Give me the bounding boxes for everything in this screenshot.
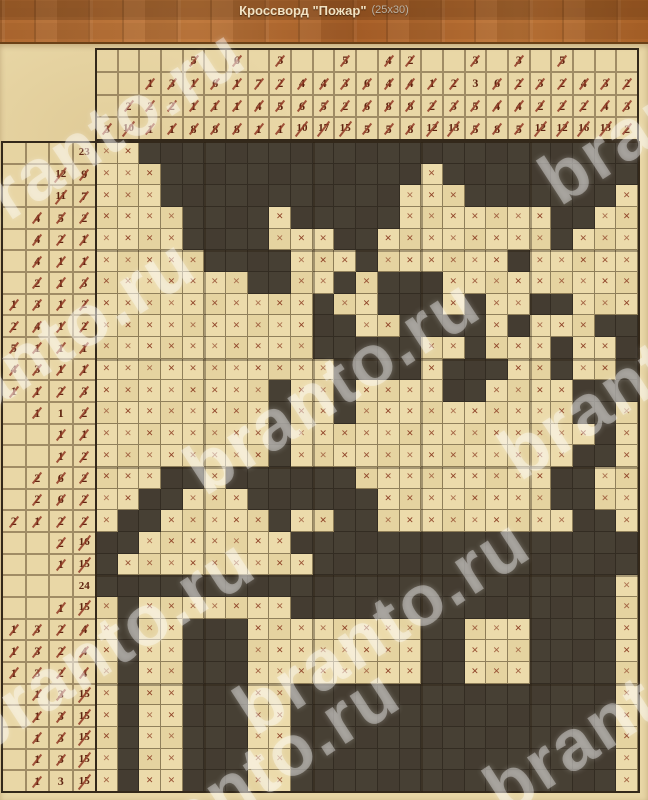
clue-number[interactable]: 2: [81, 472, 87, 484]
grid-cell-filled[interactable]: [356, 705, 378, 727]
clue-number[interactable]: 1: [11, 645, 17, 657]
grid-cell-filled[interactable]: [530, 770, 552, 792]
grid-cell-filled[interactable]: [421, 749, 443, 771]
grid-cell-filled[interactable]: [183, 749, 205, 771]
grid-cell-empty[interactable]: ✕: [139, 705, 161, 727]
grid-cell-filled[interactable]: [356, 359, 378, 381]
clue-number[interactable]: 2: [342, 100, 348, 112]
grid-cell-filled[interactable]: [291, 770, 313, 792]
grid-cell-empty[interactable]: ✕: [139, 727, 161, 749]
clue-number[interactable]: 2: [624, 123, 630, 135]
grid-cell-empty[interactable]: ✕: [248, 380, 270, 402]
clue-number[interactable]: 2: [58, 645, 64, 657]
clue-number[interactable]: 3: [472, 54, 478, 66]
clue-number[interactable]: 1: [234, 77, 240, 89]
clue-number[interactable]: 3: [624, 100, 630, 112]
grid-cell-filled[interactable]: [595, 185, 617, 207]
grid-cell-empty[interactable]: ✕: [183, 424, 205, 446]
grid-cell-filled[interactable]: [118, 684, 140, 706]
grid-cell-filled[interactable]: [334, 142, 356, 164]
grid-cell-filled[interactable]: [551, 619, 573, 641]
grid-cell-empty[interactable]: ✕: [269, 705, 291, 727]
grid-cell-empty[interactable]: ✕: [508, 229, 530, 251]
clue-number[interactable]: 10: [123, 123, 134, 134]
grid-cell-empty[interactable]: ✕: [183, 489, 205, 511]
clue-number[interactable]: 8: [494, 123, 500, 135]
grid-cell-filled[interactable]: [204, 619, 226, 641]
grid-cell-empty[interactable]: ✕: [291, 424, 313, 446]
grid-cell-empty[interactable]: ✕: [465, 640, 487, 662]
clue-number[interactable]: 4: [81, 667, 87, 679]
grid-cell-filled[interactable]: [400, 272, 422, 294]
grid-cell-filled[interactable]: [595, 424, 617, 446]
grid-cell-empty[interactable]: ✕: [291, 337, 313, 359]
grid-cell-empty[interactable]: ✕: [161, 359, 183, 381]
clue-number[interactable]: 4: [386, 54, 392, 66]
grid-cell-empty[interactable]: ✕: [443, 467, 465, 489]
grid-cell-filled[interactable]: [551, 185, 573, 207]
grid-cell-filled[interactable]: [573, 662, 595, 684]
clue-number[interactable]: 8: [191, 123, 197, 135]
grid-cell-empty[interactable]: ✕: [465, 229, 487, 251]
grid-cell-filled[interactable]: [551, 705, 573, 727]
grid-cell-filled[interactable]: [530, 727, 552, 749]
grid-cell-empty[interactable]: ✕: [551, 510, 573, 532]
grid-cell-filled[interactable]: [573, 597, 595, 619]
clue-number[interactable]: 1: [58, 342, 64, 354]
grid-cell-empty[interactable]: ✕: [183, 359, 205, 381]
grid-cell-empty[interactable]: ✕: [595, 229, 617, 251]
clue-number[interactable]: 2: [559, 100, 565, 112]
clue-number[interactable]: 4: [321, 77, 327, 89]
grid-cell-filled[interactable]: [161, 467, 183, 489]
grid-cell-filled[interactable]: [183, 575, 205, 597]
clue-number[interactable]: 12: [557, 123, 568, 134]
grid-cell-empty[interactable]: ✕: [595, 489, 617, 511]
grid-cell-filled[interactable]: [616, 532, 638, 554]
grid-cell-filled[interactable]: [269, 424, 291, 446]
grid-cell-empty[interactable]: ✕: [465, 207, 487, 229]
grid-cell-empty[interactable]: ✕: [378, 445, 400, 467]
grid-cell-empty[interactable]: ✕: [183, 445, 205, 467]
grid-cell-empty[interactable]: ✕: [161, 272, 183, 294]
clue-number[interactable]: 5: [559, 54, 565, 66]
grid-cell-filled[interactable]: [551, 294, 573, 316]
grid-cell-empty[interactable]: ✕: [443, 510, 465, 532]
grid-cell-filled[interactable]: [313, 532, 335, 554]
clue-number[interactable]: 2: [277, 77, 283, 89]
grid-cell-empty[interactable]: ✕: [400, 619, 422, 641]
grid-cell-filled[interactable]: [573, 445, 595, 467]
grid-cell-empty[interactable]: ✕: [334, 294, 356, 316]
grid-cell-filled[interactable]: [530, 532, 552, 554]
grid-cell-filled[interactable]: [551, 142, 573, 164]
grid-cell-filled[interactable]: [378, 337, 400, 359]
grid-cell-filled[interactable]: [400, 294, 422, 316]
clue-number[interactable]: 2: [147, 100, 153, 112]
grid-cell-empty[interactable]: ✕: [508, 380, 530, 402]
clue-number[interactable]: 6: [494, 77, 500, 89]
grid-cell-filled[interactable]: [551, 749, 573, 771]
grid-cell-empty[interactable]: ✕: [530, 510, 552, 532]
grid-cell-empty[interactable]: ✕: [161, 770, 183, 792]
grid-cell-filled[interactable]: [595, 554, 617, 576]
grid-cell-filled[interactable]: [183, 770, 205, 792]
grid-cell-empty[interactable]: ✕: [508, 510, 530, 532]
grid-cell-empty[interactable]: ✕: [421, 445, 443, 467]
grid-cell-empty[interactable]: ✕: [356, 467, 378, 489]
grid-cell-filled[interactable]: [334, 489, 356, 511]
grid-cell-filled[interactable]: [508, 532, 530, 554]
grid-cell-empty[interactable]: ✕: [486, 445, 508, 467]
grid-cell-filled[interactable]: [421, 315, 443, 337]
clue-number[interactable]: 2: [169, 100, 175, 112]
grid-cell-filled[interactable]: [465, 749, 487, 771]
clue-number[interactable]: 8: [407, 100, 413, 112]
clue-number[interactable]: 6: [58, 472, 64, 484]
grid-cell-empty[interactable]: ✕: [443, 424, 465, 446]
grid-cell-filled[interactable]: [616, 380, 638, 402]
grid-cell-filled[interactable]: [118, 532, 140, 554]
grid-cell-empty[interactable]: ✕: [139, 207, 161, 229]
grid-cell-empty[interactable]: ✕: [508, 359, 530, 381]
grid-cell-empty[interactable]: ✕: [595, 294, 617, 316]
grid-cell-empty[interactable]: ✕: [486, 337, 508, 359]
clue-number[interactable]: 1: [11, 623, 17, 635]
grid-cell-empty[interactable]: ✕: [400, 510, 422, 532]
grid-cell-filled[interactable]: [226, 142, 248, 164]
grid-cell-empty[interactable]: ✕: [96, 380, 118, 402]
grid-cell-filled[interactable]: [204, 142, 226, 164]
grid-cell-filled[interactable]: [356, 510, 378, 532]
grid-cell-filled[interactable]: [443, 640, 465, 662]
clue-number[interactable]: 2: [537, 100, 543, 112]
grid-cell-empty[interactable]: ✕: [161, 445, 183, 467]
clue-number[interactable]: 3: [277, 54, 283, 66]
grid-cell-empty[interactable]: ✕: [508, 445, 530, 467]
grid-cell-empty[interactable]: ✕: [269, 315, 291, 337]
grid-cell-empty[interactable]: ✕: [161, 229, 183, 251]
grid-cell-empty[interactable]: ✕: [400, 467, 422, 489]
grid-cell-empty[interactable]: ✕: [378, 662, 400, 684]
grid-cell-empty[interactable]: ✕: [551, 424, 573, 446]
grid-cell-empty[interactable]: ✕: [443, 185, 465, 207]
grid-cell-filled[interactable]: [616, 337, 638, 359]
clue-number[interactable]: 2: [81, 320, 87, 332]
grid-cell-filled[interactable]: [616, 164, 638, 186]
grid-cell-empty[interactable]: ✕: [248, 684, 270, 706]
grid-cell-empty[interactable]: ✕: [595, 337, 617, 359]
clue-number[interactable]: 8: [386, 100, 392, 112]
clue-number[interactable]: 1: [256, 123, 262, 135]
grid-cell-empty[interactable]: ✕: [616, 705, 638, 727]
grid-cell-filled[interactable]: [161, 142, 183, 164]
clue-number[interactable]: 4: [34, 233, 40, 245]
clue-number[interactable]: 1: [11, 667, 17, 679]
clue-number[interactable]: 4: [34, 255, 40, 267]
grid-cell-empty[interactable]: ✕: [269, 337, 291, 359]
grid-cell-filled[interactable]: [378, 207, 400, 229]
clue-number[interactable]: 4: [386, 77, 392, 89]
clue-number[interactable]: 2: [81, 212, 87, 224]
clue-number[interactable]: 3: [472, 77, 478, 89]
grid-cell-empty[interactable]: ✕: [616, 770, 638, 792]
grid-cell-filled[interactable]: [204, 207, 226, 229]
grid-cell-filled[interactable]: [508, 185, 530, 207]
grid-cell-filled[interactable]: [356, 337, 378, 359]
clue-number[interactable]: 4: [299, 77, 305, 89]
grid-cell-filled[interactable]: [183, 164, 205, 186]
clue-number[interactable]: 2: [81, 450, 87, 462]
grid-cell-filled[interactable]: [443, 597, 465, 619]
grid-cell-empty[interactable]: ✕: [508, 272, 530, 294]
grid-cell-empty[interactable]: ✕: [226, 402, 248, 424]
grid-cell-empty[interactable]: ✕: [595, 207, 617, 229]
grid-cell-empty[interactable]: ✕: [248, 662, 270, 684]
clue-number[interactable]: 8: [234, 123, 240, 135]
grid-cell-empty[interactable]: ✕: [226, 424, 248, 446]
grid-cell-empty[interactable]: ✕: [161, 597, 183, 619]
grid-cell-empty[interactable]: ✕: [616, 662, 638, 684]
grid-cell-filled[interactable]: [334, 164, 356, 186]
grid-cell-empty[interactable]: ✕: [443, 207, 465, 229]
grid-cell-empty[interactable]: ✕: [530, 272, 552, 294]
grid-cell-empty[interactable]: ✕: [508, 402, 530, 424]
grid-cell-filled[interactable]: [334, 359, 356, 381]
grid-cell-filled[interactable]: [378, 575, 400, 597]
grid-cell-empty[interactable]: ✕: [96, 489, 118, 511]
grid-cell-filled[interactable]: [465, 705, 487, 727]
clue-number[interactable]: 16: [578, 123, 589, 134]
grid-cell-empty[interactable]: ✕: [204, 315, 226, 337]
clue-number[interactable]: 5: [472, 123, 478, 135]
grid-cell-filled[interactable]: [378, 749, 400, 771]
clue-number[interactable]: 4: [34, 320, 40, 332]
grid-cell-empty[interactable]: ✕: [161, 749, 183, 771]
clue-number[interactable]: 1: [277, 123, 283, 135]
grid-cell-empty[interactable]: ✕: [139, 164, 161, 186]
grid-cell-empty[interactable]: ✕: [96, 597, 118, 619]
clue-number[interactable]: 6: [234, 54, 240, 66]
grid-cell-empty[interactable]: ✕: [291, 272, 313, 294]
clue-number[interactable]: 3: [451, 100, 457, 112]
grid-cell-filled[interactable]: [378, 705, 400, 727]
grid-cell-empty[interactable]: ✕: [486, 662, 508, 684]
grid-cell-empty[interactable]: ✕: [616, 597, 638, 619]
grid-cell-empty[interactable]: ✕: [161, 662, 183, 684]
grid-cell-filled[interactable]: [465, 164, 487, 186]
grid-cell-empty[interactable]: ✕: [616, 749, 638, 771]
grid-cell-filled[interactable]: [334, 575, 356, 597]
grid-cell-filled[interactable]: [183, 705, 205, 727]
grid-cell-filled[interactable]: [291, 142, 313, 164]
grid-cell-empty[interactable]: ✕: [356, 402, 378, 424]
grid-cell-empty[interactable]: ✕: [118, 359, 140, 381]
grid-cell-filled[interactable]: [595, 380, 617, 402]
grid-cell-empty[interactable]: ✕: [421, 489, 443, 511]
grid-cell-filled[interactable]: [551, 467, 573, 489]
grid-cell-filled[interactable]: [421, 705, 443, 727]
grid-cell-empty[interactable]: ✕: [400, 445, 422, 467]
clue-number[interactable]: 15: [79, 711, 90, 722]
grid-cell-filled[interactable]: [226, 207, 248, 229]
grid-cell-empty[interactable]: ✕: [313, 510, 335, 532]
grid-cell-filled[interactable]: [291, 532, 313, 554]
clue-number[interactable]: 1: [147, 77, 153, 89]
clue-number[interactable]: 4: [81, 645, 87, 657]
grid-cell-filled[interactable]: [595, 510, 617, 532]
clue-number[interactable]: 3: [602, 77, 608, 89]
grid-cell-filled[interactable]: [551, 207, 573, 229]
grid-cell-filled[interactable]: [595, 640, 617, 662]
grid-cell-filled[interactable]: [291, 575, 313, 597]
grid-cell-empty[interactable]: ✕: [291, 359, 313, 381]
clue-number[interactable]: 24: [79, 581, 90, 592]
grid-cell-filled[interactable]: [313, 684, 335, 706]
grid-cell-filled[interactable]: [334, 207, 356, 229]
grid-cell-empty[interactable]: ✕: [356, 294, 378, 316]
grid-cell-empty[interactable]: ✕: [356, 445, 378, 467]
grid-cell-empty[interactable]: ✕: [551, 380, 573, 402]
grid-cell-empty[interactable]: ✕: [573, 250, 595, 272]
grid-cell-filled[interactable]: [291, 705, 313, 727]
grid-cell-filled[interactable]: [378, 684, 400, 706]
grid-cell-filled[interactable]: [183, 662, 205, 684]
grid-cell-empty[interactable]: ✕: [183, 402, 205, 424]
grid-cell-empty[interactable]: ✕: [443, 337, 465, 359]
grid-cell-filled[interactable]: [573, 489, 595, 511]
grid-cell-filled[interactable]: [334, 272, 356, 294]
clue-number[interactable]: 12: [55, 169, 66, 180]
grid-cell-filled[interactable]: [269, 402, 291, 424]
grid-cell-filled[interactable]: [486, 575, 508, 597]
grid-cell-empty[interactable]: ✕: [530, 337, 552, 359]
grid-cell-filled[interactable]: [465, 337, 487, 359]
grid-cell-filled[interactable]: [334, 467, 356, 489]
grid-cell-filled[interactable]: [118, 749, 140, 771]
grid-cell-empty[interactable]: ✕: [400, 489, 422, 511]
clue-number[interactable]: 4: [602, 100, 608, 112]
grid-cell-empty[interactable]: ✕: [96, 250, 118, 272]
grid-cell-filled[interactable]: [356, 164, 378, 186]
grid-cell-empty[interactable]: ✕: [616, 185, 638, 207]
grid-cell-empty[interactable]: ✕: [139, 619, 161, 641]
grid-cell-empty[interactable]: ✕: [139, 662, 161, 684]
grid-cell-empty[interactable]: ✕: [508, 489, 530, 511]
clue-number[interactable]: 15: [79, 602, 90, 613]
grid-cell-filled[interactable]: [356, 749, 378, 771]
grid-cell-empty[interactable]: ✕: [161, 337, 183, 359]
clue-number[interactable]: 5: [516, 123, 522, 135]
grid-cell-empty[interactable]: ✕: [378, 424, 400, 446]
grid-cell-filled[interactable]: [313, 727, 335, 749]
grid-cell-filled[interactable]: [551, 727, 573, 749]
grid-cell-filled[interactable]: [291, 185, 313, 207]
grid-cell-empty[interactable]: ✕: [118, 445, 140, 467]
grid-cell-empty[interactable]: ✕: [248, 619, 270, 641]
clue-number[interactable]: 3: [58, 775, 64, 787]
grid-cell-empty[interactable]: ✕: [291, 445, 313, 467]
clue-number[interactable]: 15: [79, 689, 90, 700]
grid-cell-empty[interactable]: ✕: [508, 619, 530, 641]
grid-cell-empty[interactable]: ✕: [226, 489, 248, 511]
grid-cell-filled[interactable]: [313, 337, 335, 359]
clue-number[interactable]: 13: [600, 123, 611, 134]
grid-cell-empty[interactable]: ✕: [161, 207, 183, 229]
grid-cell-empty[interactable]: ✕: [616, 207, 638, 229]
grid-cell-empty[interactable]: ✕: [204, 445, 226, 467]
grid-cell-filled[interactable]: [313, 554, 335, 576]
grid-cell-empty[interactable]: ✕: [118, 272, 140, 294]
grid-cell-empty[interactable]: ✕: [486, 380, 508, 402]
grid-cell-filled[interactable]: [573, 467, 595, 489]
grid-cell-empty[interactable]: ✕: [269, 684, 291, 706]
grid-cell-filled[interactable]: [139, 489, 161, 511]
grid-cell-filled[interactable]: [551, 489, 573, 511]
grid-cell-empty[interactable]: ✕: [378, 402, 400, 424]
grid-cell-empty[interactable]: ✕: [334, 640, 356, 662]
clue-number[interactable]: 1: [81, 233, 87, 245]
grid-cell-empty[interactable]: ✕: [226, 337, 248, 359]
grid-cell-filled[interactable]: [334, 315, 356, 337]
grid-cell-filled[interactable]: [443, 705, 465, 727]
clue-number[interactable]: 1: [58, 298, 64, 310]
grid-cell-empty[interactable]: ✕: [226, 597, 248, 619]
grid-cell-empty[interactable]: ✕: [226, 554, 248, 576]
clue-number[interactable]: 2: [58, 233, 64, 245]
grid-cell-filled[interactable]: [573, 402, 595, 424]
grid-cell-empty[interactable]: ✕: [248, 294, 270, 316]
grid-cell-filled[interactable]: [248, 207, 270, 229]
grid-cell-filled[interactable]: [269, 142, 291, 164]
grid-cell-empty[interactable]: ✕: [161, 554, 183, 576]
clue-number[interactable]: 2: [58, 385, 64, 397]
grid-cell-filled[interactable]: [595, 705, 617, 727]
grid-cell-filled[interactable]: [118, 727, 140, 749]
grid-cell-empty[interactable]: ✕: [118, 207, 140, 229]
grid-cell-filled[interactable]: [530, 619, 552, 641]
grid-cell-empty[interactable]: ✕: [616, 575, 638, 597]
clue-number[interactable]: 13: [448, 123, 459, 134]
grid-cell-filled[interactable]: [204, 662, 226, 684]
grid-cell-empty[interactable]: ✕: [616, 445, 638, 467]
grid-cell-filled[interactable]: [204, 229, 226, 251]
grid-cell-empty[interactable]: ✕: [486, 640, 508, 662]
grid-cell-filled[interactable]: [443, 749, 465, 771]
grid-cell-filled[interactable]: [226, 229, 248, 251]
grid-cell-filled[interactable]: [595, 727, 617, 749]
grid-cell-empty[interactable]: ✕: [269, 749, 291, 771]
grid-cell-empty[interactable]: ✕: [248, 770, 270, 792]
clue-number[interactable]: 10: [296, 123, 307, 134]
grid-cell-empty[interactable]: ✕: [161, 619, 183, 641]
grid-cell-empty[interactable]: ✕: [616, 229, 638, 251]
grid-cell-filled[interactable]: [530, 164, 552, 186]
grid-cell-empty[interactable]: ✕: [378, 640, 400, 662]
grid-cell-empty[interactable]: ✕: [530, 359, 552, 381]
grid-cell-filled[interactable]: [248, 250, 270, 272]
clue-number[interactable]: 1: [58, 363, 64, 375]
grid-cell-empty[interactable]: ✕: [530, 467, 552, 489]
grid-cell-empty[interactable]: ✕: [269, 532, 291, 554]
grid-cell-empty[interactable]: ✕: [465, 619, 487, 641]
grid-cell-filled[interactable]: [334, 597, 356, 619]
grid-cell-filled[interactable]: [204, 749, 226, 771]
clue-number[interactable]: 1: [34, 385, 40, 397]
grid-cell-filled[interactable]: [118, 597, 140, 619]
clue-number[interactable]: 3: [34, 298, 40, 310]
grid-cell-filled[interactable]: [356, 684, 378, 706]
